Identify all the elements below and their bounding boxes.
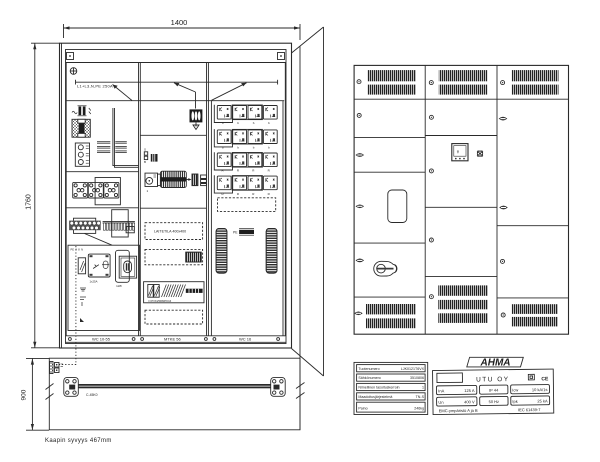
svg-text:MTKE 56: MTKE 56 [164, 337, 181, 342]
svg-text:InA: InA [438, 388, 444, 393]
svg-text:WC 10-55: WC 10-55 [92, 337, 111, 342]
svg-text:50 Hz: 50 Hz [489, 399, 500, 404]
svg-text:S: S [144, 148, 146, 152]
svg-text:IEC 61439-7: IEC 61439-7 [518, 407, 541, 412]
svg-text:1760: 1760 [26, 194, 33, 210]
svg-text:PE: PE [233, 231, 238, 235]
svg-text:125 A: 125 A [464, 388, 475, 393]
svg-text:10 kA/1s: 10 kA/1s [532, 387, 548, 392]
svg-text:400 V: 400 V [464, 399, 475, 404]
svg-text:1x25A: 1x25A [90, 279, 98, 283]
svg-text:Paino: Paino [358, 406, 367, 410]
svg-text:PE 8 8 N: PE 8 8 N [71, 248, 84, 252]
svg-text:B: B [144, 160, 146, 164]
svg-text:AHMA: AHMA [480, 357, 511, 368]
svg-text:Maadoitusjärjestelmä: Maadoitusjärjestelmä [358, 395, 392, 399]
svg-text:CE: CE [541, 376, 549, 382]
svg-text:Icw: Icw [512, 387, 518, 392]
svg-text:LJK0121T6VX: LJK0121T6VX [401, 367, 425, 371]
svg-text:Sähkönumero: Sähkönumero [358, 376, 380, 380]
svg-text:Ipk: Ipk [512, 399, 517, 404]
svg-text:1400: 1400 [171, 18, 188, 27]
svg-text:LAITETILA 400x400: LAITETILA 400x400 [154, 230, 186, 234]
svg-text:IP 44: IP 44 [489, 388, 499, 393]
svg-text:C-45K0: C-45K0 [86, 393, 98, 397]
svg-text:kWh: kWh [117, 284, 123, 288]
svg-text:L1+L3,N,PE 250A: L1+L3,N,PE 250A [77, 83, 113, 88]
svg-text:Tuotenumero: Tuotenumero [358, 367, 379, 371]
svg-text:N PVK25RMPK16: N PVK25RMPK16 [149, 299, 172, 303]
svg-text:UTU OY: UTU OY [476, 376, 510, 383]
svg-text:246kg: 246kg [414, 406, 424, 410]
svg-text:1: 1 [422, 386, 424, 390]
svg-text:Un: Un [438, 400, 443, 405]
svg-text:TN-S: TN-S [416, 395, 425, 399]
svg-text:25 kA: 25 kA [537, 398, 548, 403]
svg-text:3510806: 3510806 [410, 376, 424, 380]
svg-text:900: 900 [21, 389, 28, 400]
svg-text:Kaapin syvyys 467mm: Kaapin syvyys 467mm [45, 438, 112, 444]
svg-text:WC 16: WC 16 [239, 337, 252, 342]
svg-text:EMC-ympäristö A ja B: EMC-ympäristö A ja B [439, 408, 478, 413]
svg-text:Nimellinen tasoituskerroin: Nimellinen tasoituskerroin [358, 386, 399, 390]
